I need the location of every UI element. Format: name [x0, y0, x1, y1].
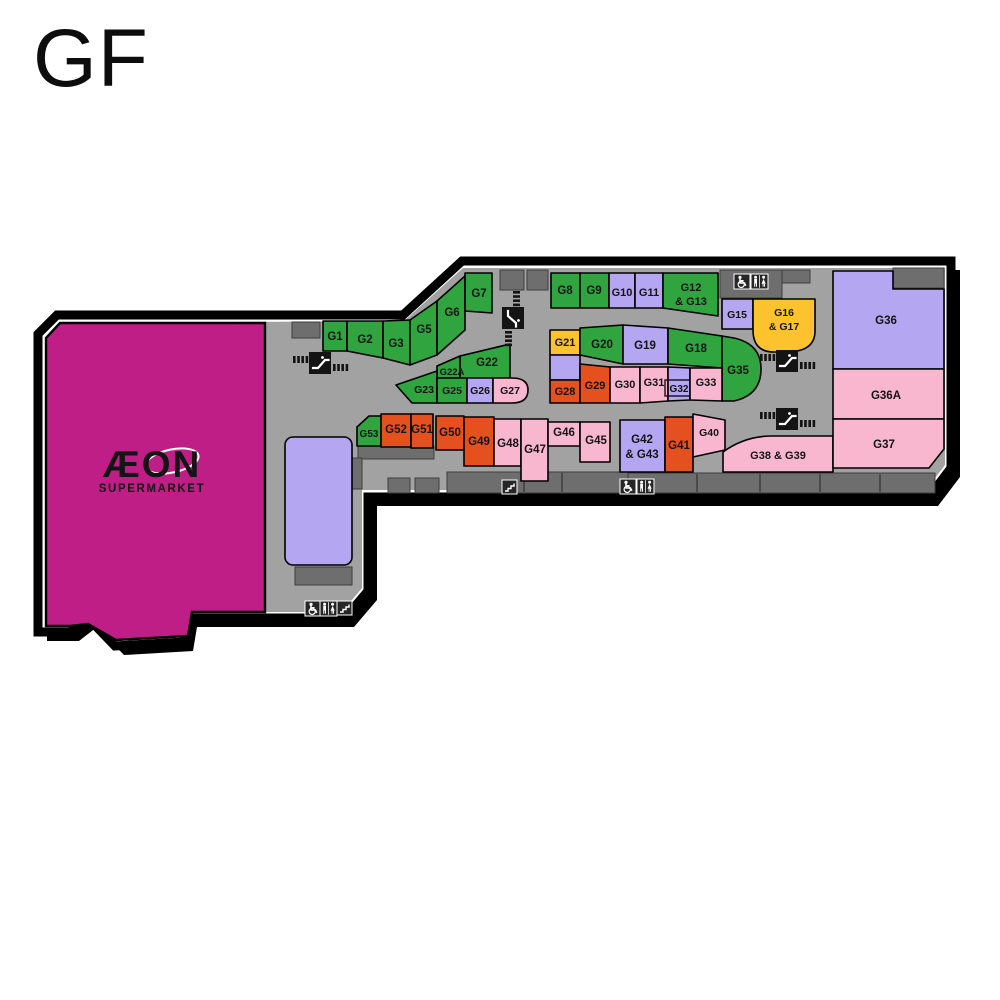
- stairs-icon: [502, 480, 517, 494]
- unit-G29-label: G29: [585, 380, 606, 392]
- unit-G38-G39-label: G38 & G39: [750, 450, 806, 462]
- unit-G6-label: G6: [444, 307, 459, 319]
- service-block: [295, 567, 352, 585]
- service-block: [893, 268, 944, 288]
- stairs-icon: [337, 601, 352, 615]
- service-block: [415, 478, 439, 493]
- unit-G49-label: G49: [468, 436, 490, 448]
- unit-G23-label: G23: [414, 384, 434, 396]
- unit-kiosk-b: [285, 437, 352, 565]
- unit-G16-G17-label: & G17: [769, 321, 800, 333]
- unit-G7-label: G7: [471, 288, 486, 300]
- unit-G30-label: G30: [615, 379, 636, 391]
- unit-G48-label: G48: [497, 438, 519, 450]
- accessible-toilet-icon: [305, 601, 321, 616]
- unit-G36-label: G36: [875, 315, 897, 327]
- aeon-logo-subtitle: SUPERMARKET: [99, 483, 205, 495]
- unit-G35-label: G35: [727, 365, 749, 377]
- unit-G21-label: G21: [555, 337, 576, 349]
- unit-G2-label: G2: [357, 334, 372, 346]
- unit-G42-G43-label: & G43: [625, 449, 658, 461]
- unit-G16-G17-label: G16: [774, 307, 794, 319]
- unit-G12-G13-label: G12: [681, 282, 702, 294]
- aeon-logo-text: ÆON: [103, 444, 202, 485]
- service-block: [628, 473, 935, 493]
- unit-G41-label: G41: [668, 440, 690, 452]
- unit-G3-label: G3: [388, 338, 403, 350]
- service-block: [782, 270, 810, 283]
- unit-G20-label: G20: [591, 339, 613, 351]
- unit-G50-label: G50: [439, 427, 461, 439]
- unit-G42-G43: [620, 420, 665, 472]
- service-block: [292, 322, 320, 338]
- unit-G28-label: G28: [555, 386, 576, 398]
- unit-G47-label: G47: [524, 444, 546, 456]
- service-block: [527, 270, 548, 290]
- unit-G36A-label: G36A: [871, 390, 901, 402]
- service-block: [500, 270, 524, 290]
- unit-G53-label: G53: [360, 429, 379, 440]
- unit-G37-label: G37: [873, 439, 895, 451]
- unit-G18-label: G18: [685, 343, 707, 355]
- unit-G15-label: G15: [727, 309, 747, 321]
- unit-G52-label: G52: [385, 424, 407, 436]
- unit-G51-label: G51: [411, 424, 433, 436]
- unit-G19-label: G19: [634, 340, 656, 352]
- unit-G22A-label: G22A: [440, 367, 465, 378]
- unit-G11-label: G11: [639, 287, 659, 299]
- unit-G33-label: G33: [696, 377, 717, 389]
- unit-G32-label: G32: [670, 384, 689, 395]
- restroom-icon: [320, 601, 337, 616]
- unit-G46-label: G46: [553, 427, 575, 439]
- unit-kiosk-a: [550, 355, 580, 380]
- restroom-icon: [637, 479, 654, 494]
- accessible-toilet-icon: [620, 479, 636, 494]
- unit-G42-G43-label: G42: [631, 434, 653, 446]
- unit-G26-label: G26: [470, 385, 490, 397]
- unit-G22-label: G22: [476, 357, 498, 369]
- unit-G5-label: G5: [416, 324, 432, 336]
- unit-G40-label: G40: [699, 427, 719, 439]
- unit-G8-label: G8: [557, 285, 573, 297]
- unit-G45-label: G45: [585, 435, 607, 447]
- unit-G27-label: G27: [500, 385, 520, 397]
- unit-G31-label: G31: [644, 377, 665, 389]
- unit-G1-label: G1: [327, 331, 343, 343]
- unit-G25-label: G25: [442, 385, 462, 397]
- service-block: [388, 478, 410, 493]
- accessible-toilet-icon: [734, 274, 750, 289]
- unit-G12-G13: [663, 273, 718, 316]
- restroom-icon: [751, 274, 768, 289]
- unit-G9-label: G9: [586, 285, 601, 297]
- mall-floor-map: G1G2G3G5G6G7G8G9G10G11G12& G13G15G16& G1…: [0, 0, 1000, 1000]
- unit-G12-G13-label: & G13: [675, 296, 707, 308]
- unit-G10-label: G10: [612, 287, 633, 299]
- floor-plan-page: GF G1G2G3G5G6G7G8G9G10G11G12& G13G15G16&…: [0, 0, 1000, 1000]
